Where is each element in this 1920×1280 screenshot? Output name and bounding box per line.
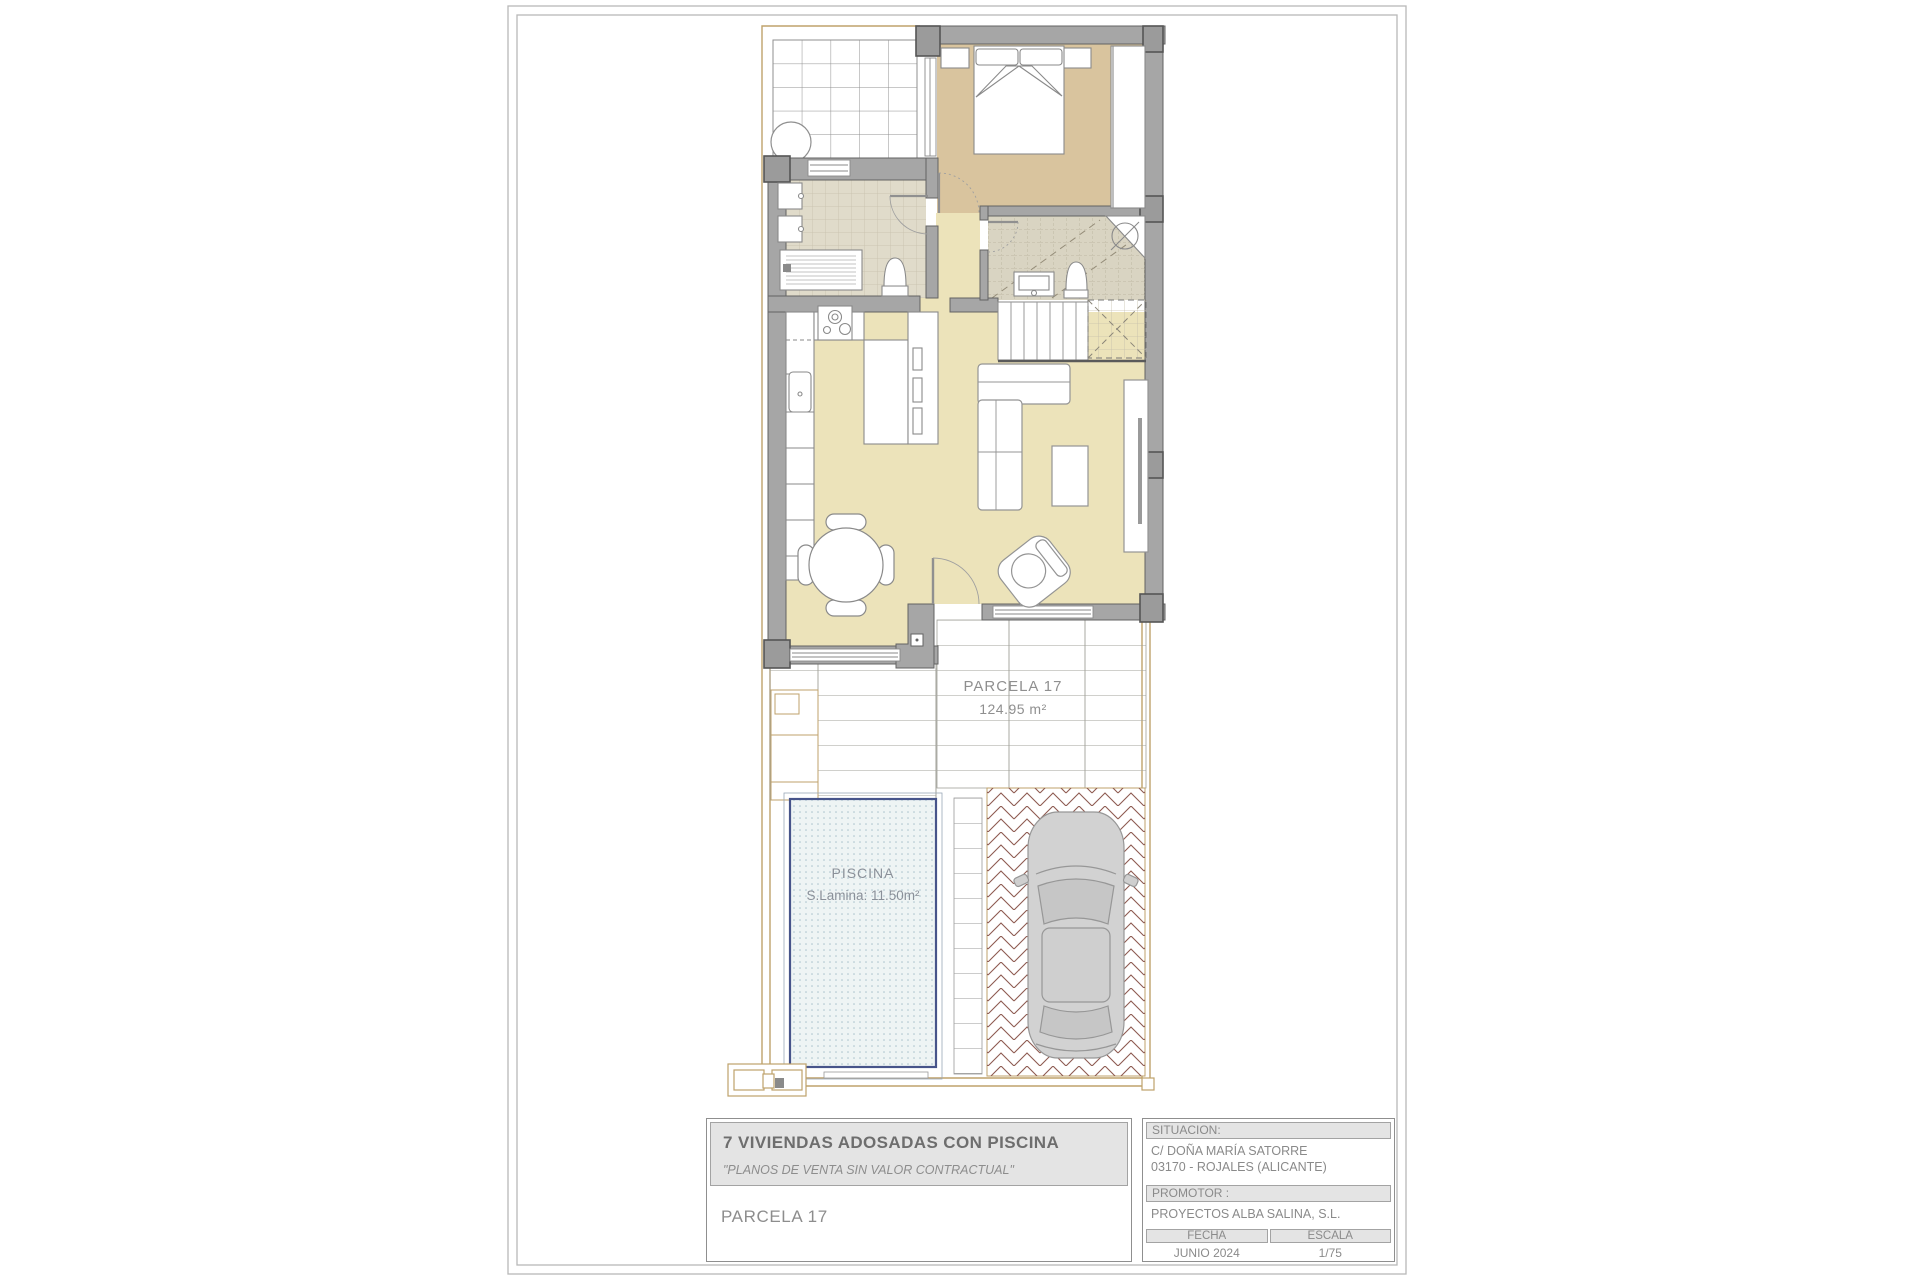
pool: [784, 793, 942, 1079]
washbasin-icon: [1014, 272, 1054, 296]
wall-top: [920, 26, 1165, 44]
architectural-drawing-page: PARCELA 17 124.95 m² PISCINA S.Lamina: 1…: [0, 0, 1920, 1280]
pool-name-label: PISCINA: [831, 865, 894, 881]
nightstand-left: [941, 48, 969, 68]
sink-2-tap: [799, 227, 804, 232]
promotor-value: PROYECTOS ALBA SALINA, S.L.: [1151, 1207, 1340, 1221]
hall-passage-floor: [920, 296, 950, 314]
escala-label: ESCALA: [1270, 1229, 1392, 1243]
wall-bath-right-b: [926, 226, 938, 298]
staircase: [998, 300, 1146, 361]
kitchen-sink-drain: [798, 392, 802, 396]
fecha-value: JUNIO 2024: [1146, 1245, 1268, 1261]
title-block-right: SITUACION: C/ DOÑA MARÍA SATORRE 03170 -…: [1142, 1118, 1395, 1262]
tv-unit: [1124, 380, 1148, 552]
fecha-escala-value-row: JUNIO 2024 1/75: [1146, 1245, 1391, 1261]
wall-terrace-bottom: [768, 158, 938, 180]
terrace-bedroom-window: [925, 58, 936, 156]
title-band: 7 VIVIENDAS ADOSADAS CON PISCINA "PLANOS…: [710, 1122, 1128, 1186]
coffee-table: [1052, 446, 1088, 506]
living-sliding-door: [993, 606, 1093, 618]
bed-icon: [974, 46, 1064, 154]
kitchen-counter-left: [786, 312, 814, 580]
walkway-tiles: [954, 798, 982, 1074]
kitchen-shelf-3: [913, 408, 922, 434]
parcel-title: PARCELA 17: [721, 1207, 828, 1227]
situacion-label: SITUACION:: [1147, 1123, 1390, 1138]
dining-table: [809, 528, 883, 602]
promotor-label: PROMOTOR :: [1147, 1186, 1390, 1201]
car-icon: [1013, 812, 1139, 1058]
planter-blocks: [771, 690, 818, 800]
roof-terrace: [771, 40, 917, 162]
shower-tray: [780, 250, 862, 290]
bath-window: [808, 160, 850, 176]
step-block-dot: [916, 639, 919, 642]
dining-window: [790, 649, 900, 661]
promotor-band: PROMOTOR :: [1146, 1185, 1391, 1202]
pool-area-label: S.Lamina: 11.50m²: [806, 888, 920, 903]
fecha-escala-header-row: FECHA ESCALA: [1146, 1229, 1391, 1243]
kitchen-shelf-2: [913, 378, 922, 402]
wall-bath-right-a: [926, 158, 938, 198]
parcel-name-label: PARCELA 17: [964, 678, 1063, 695]
pool-step: [824, 1072, 928, 1078]
situacion-band: SITUACION:: [1146, 1122, 1391, 1139]
wall-ensuite-left-a: [980, 206, 988, 220]
hob-icon: [818, 306, 852, 340]
escala-value: 1/75: [1270, 1245, 1392, 1261]
wall-ensuite-left-b: [980, 250, 988, 300]
closet: [1111, 46, 1145, 208]
nightstand-right: [1063, 48, 1091, 68]
kitchen-island: [864, 340, 908, 444]
floor-plan-svg: PARCELA 17 124.95 m² PISCINA S.Lamina: 1…: [0, 0, 1920, 1280]
under-stairs-storage: [1088, 300, 1146, 358]
disclaimer-note: "PLANOS DE VENTA SIN VALOR CONTRACTUAL": [723, 1163, 1014, 1177]
kitchen-shelf-1: [913, 348, 922, 370]
parcel-area-label: 124.95 m²: [979, 701, 1047, 717]
wall-stairs-top: [950, 298, 998, 312]
address-line-1: C/ DOÑA MARÍA SATORRE: [1151, 1143, 1327, 1159]
title-block-left: 7 VIVIENDAS ADOSADAS CON PISCINA "PLANOS…: [706, 1118, 1132, 1262]
project-title: 7 VIVIENDAS ADOSADAS CON PISCINA: [723, 1133, 1059, 1153]
tv-icon: [1138, 418, 1142, 524]
address-line-2: 03170 - ROJALES (ALICANTE): [1151, 1159, 1327, 1175]
situacion-address: C/ DOÑA MARÍA SATORRE 03170 - ROJALES (A…: [1151, 1143, 1327, 1175]
fecha-label: FECHA: [1146, 1229, 1268, 1243]
sink-1-tap: [799, 194, 804, 199]
